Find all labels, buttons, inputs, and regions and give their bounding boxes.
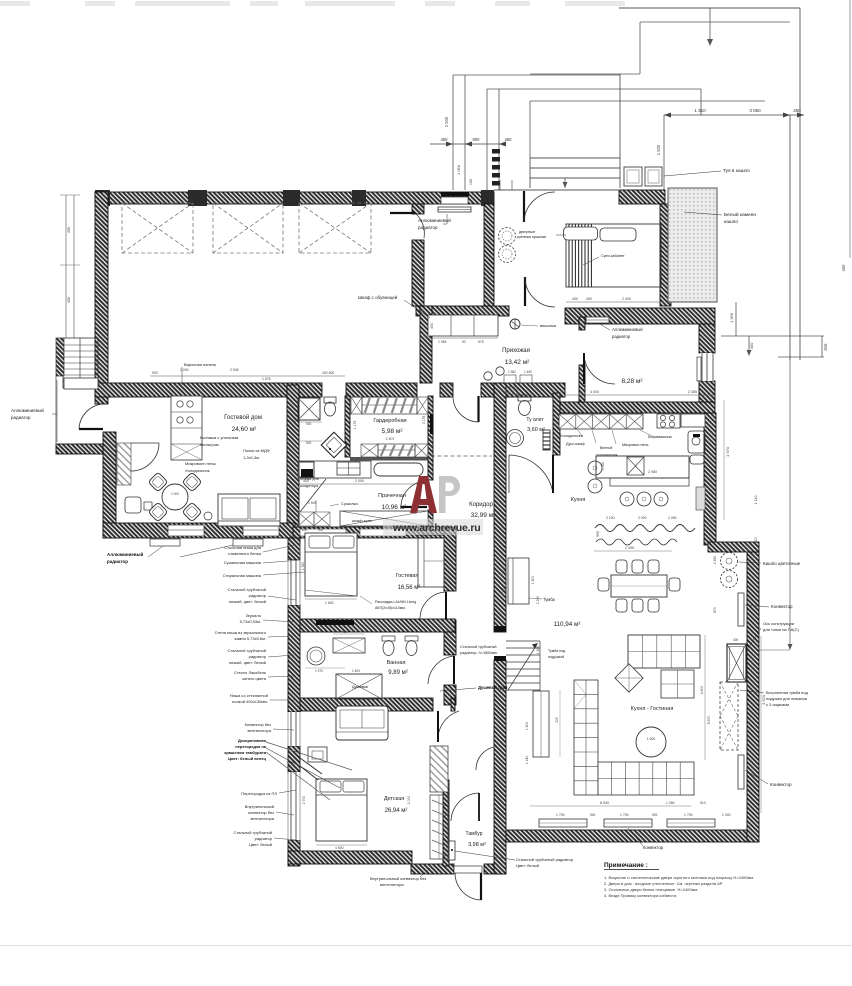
svg-text:100: 100 [469, 179, 473, 185]
svg-text:1 800: 1 800 [531, 576, 535, 585]
svg-text:Душевой трап: Душевой трап [478, 685, 508, 690]
svg-text:1 700: 1 700 [556, 813, 565, 817]
svg-text:2 850: 2 850 [713, 556, 717, 565]
svg-text:26,94 м²: 26,94 м² [385, 808, 408, 814]
svg-text:Цвет: белый венец: Цвет: белый венец [228, 756, 266, 761]
svg-text:400 600: 400 600 [322, 371, 334, 375]
svg-text:шкаф-купе: шкаф-купе [352, 518, 373, 523]
svg-text:900: 900 [306, 422, 312, 426]
svg-text:945: 945 [590, 813, 596, 817]
svg-text:Кашпо цветочные: Кашпо цветочные [763, 561, 801, 566]
svg-text:3 050: 3 050 [749, 108, 761, 113]
svg-text:Сушилка: Сушилка [341, 501, 359, 506]
svg-text:870: 870 [713, 607, 717, 613]
svg-text:Встроенная тумба под: Встроенная тумба под [766, 690, 808, 695]
svg-text:5,73х0,93м.: 5,73х0,93м. [240, 619, 261, 624]
svg-text:подушкой: подушкой [548, 655, 564, 659]
svg-text:2 980: 2 980 [648, 470, 657, 474]
svg-text:2 100: 2 100 [606, 516, 615, 520]
svg-text:450: 450 [749, 342, 754, 349]
svg-text:1 600: 1 600 [647, 737, 656, 741]
svg-text:подушки для лежания: подушки для лежания [766, 696, 807, 701]
svg-text:Венной: Венной [600, 446, 612, 450]
svg-text:Стальной трубчатый: Стальной трубчатый [228, 587, 266, 592]
svg-text:Аллюминиевый: Аллюминиевый [612, 327, 643, 332]
svg-text:Холодильник: Холодильник [560, 434, 584, 438]
svg-text:вентилятора: вентилятора [250, 816, 274, 821]
svg-text:полкой 400х130мм.: полкой 400х130мм. [232, 699, 268, 704]
svg-text:радиатор: радиатор [107, 559, 128, 564]
svg-text:вентилятора: вентилятора [380, 882, 404, 887]
svg-text:450: 450 [441, 137, 449, 142]
svg-text:www.archrevue.ru: www.archrevue.ru [392, 522, 480, 534]
svg-text:глаженного белья: глаженного белья [228, 551, 261, 556]
svg-text:радиатор: радиатор [418, 225, 438, 230]
svg-text:Раскладка LAUNN Living: Раскладка LAUNN Living [375, 600, 416, 604]
svg-text:4 620: 4 620 [761, 694, 766, 705]
svg-text:Ту алет: Ту алет [526, 417, 544, 423]
svg-text:1 310: 1 310 [694, 108, 706, 113]
svg-text:радиатор: радиатор [249, 593, 267, 598]
svg-text:2 000: 2 000 [407, 796, 411, 805]
svg-text:1 050: 1 050 [456, 164, 461, 175]
svg-text:1 700: 1 700 [684, 813, 693, 817]
svg-text:Прачечная: Прачечная [378, 493, 406, 499]
svg-text:для топки на ПА(С): для топки на ПА(С) [763, 627, 800, 632]
svg-text:Цвет: белый: Цвет: белый [249, 842, 272, 847]
svg-text:Кухня - Гостиная: Кухня - Гостиная [631, 706, 674, 712]
svg-text:Тумба: Тумба [543, 597, 556, 602]
svg-text:АКП(2х45)х110мм.: АКП(2х45)х110мм. [375, 606, 406, 610]
svg-text:750: 750 [502, 587, 506, 593]
svg-text:Стекло Лакобель: Стекло Лакобель [234, 670, 266, 675]
svg-text:945: 945 [652, 813, 658, 817]
svg-text:1 970: 1 970 [315, 669, 323, 673]
svg-text:Детская: Детская [384, 796, 404, 802]
svg-text:1 984: 1 984 [438, 340, 447, 344]
svg-text:вентилятора: вентилятора [247, 728, 271, 733]
svg-text:перегородка на: перегородка на [235, 744, 266, 749]
svg-text:600: 600 [318, 528, 324, 532]
svg-text:400: 400 [733, 638, 739, 642]
svg-text:400: 400 [342, 630, 348, 634]
svg-text:3,60 м²: 3,60 м² [527, 427, 545, 433]
svg-text:Холодильник: Холодильник [185, 468, 210, 473]
svg-text:845: 845 [823, 343, 828, 351]
svg-text:Конвектор: Конвектор [770, 782, 792, 787]
svg-text:8 940: 8 940 [600, 801, 609, 805]
svg-text:1 140: 1 140 [754, 496, 758, 505]
svg-text:1 678: 1 678 [262, 377, 271, 381]
svg-text:радиатор: радиатор [612, 334, 631, 339]
svg-text:513: 513 [293, 417, 297, 423]
svg-text:камня 5,73х0,6м.: камня 5,73х0,6м. [234, 636, 266, 641]
svg-text:2. Двери в дом - входные утепл: 2. Двери в дом - входные утепленные. См.… [604, 881, 723, 886]
svg-text:Ниша со стеклянной: Ниша со стеклянной [230, 693, 268, 698]
svg-text:Внутрипольный: Внутрипольный [245, 804, 274, 809]
svg-text:1,2х0,3м.: 1,2х0,3м. [243, 455, 260, 460]
svg-text:Стальной трубчатый радиатор: Стальной трубчатый радиатор [516, 857, 574, 862]
svg-text:24,60 м²: 24,60 м² [232, 426, 258, 433]
svg-text:1 490: 1 490 [524, 370, 532, 374]
svg-text:Ось конструкции: Ось конструкции [763, 621, 794, 626]
svg-text:920: 920 [555, 717, 559, 723]
svg-text:5,98 м²: 5,98 м² [381, 428, 403, 435]
svg-text:радиатор: радиатор [11, 415, 31, 420]
svg-text:2 385: 2 385 [688, 390, 697, 394]
svg-text:8 670: 8 670 [707, 716, 711, 725]
svg-text:Конвектор: Конвектор [643, 845, 664, 850]
svg-text:низкий, цвет: белый: низкий, цвет: белый [229, 660, 266, 665]
svg-text:Полки из МДФ: Полки из МДФ [243, 448, 270, 453]
svg-text:9,89 м²: 9,89 м² [388, 670, 407, 676]
svg-text:Стена ниша из зеркального: Стена ниша из зеркального [215, 630, 267, 635]
svg-text:Примечание :: Примечание : [604, 862, 648, 869]
svg-text:450: 450 [841, 264, 846, 272]
svg-text:2 407: 2 407 [386, 437, 395, 441]
svg-text:2 050: 2 050 [668, 516, 677, 520]
svg-text:110,94 м²: 110,94 м² [554, 621, 581, 628]
svg-text:1 400: 1 400 [536, 646, 540, 655]
svg-text:50: 50 [462, 340, 466, 344]
svg-text:910: 910 [700, 801, 706, 805]
svg-text:Стальной трубчатый: Стальной трубчатый [228, 648, 266, 653]
svg-text:Сушильная машина: Сушильная машина [224, 560, 262, 565]
svg-text:Тумба под: Тумба под [548, 649, 566, 653]
svg-text:Внутрипольный конвектор без: Внутрипольный конвектор без [370, 876, 426, 881]
svg-text:2 000: 2 000 [444, 116, 449, 127]
svg-text:1 240: 1 240 [525, 756, 529, 765]
svg-text:800: 800 [473, 137, 481, 142]
svg-text:Гостевой дом: Гостевой дом [224, 414, 262, 421]
svg-text:450: 450 [505, 137, 513, 142]
svg-text:Душ.шкаф: Душ.шкаф [566, 442, 585, 446]
svg-text:радиатор, h=1800мм.: радиатор, h=1800мм. [460, 651, 498, 655]
svg-text:конвектор без: конвектор без [248, 810, 274, 815]
svg-text:Микроволн печь/: Микроволн печь/ [185, 461, 217, 466]
svg-text:крашеном тамбурата: крашеном тамбурата [224, 750, 266, 755]
svg-text:Коридор: Коридор [469, 502, 493, 508]
svg-text:крепежи сушилки: крепежи сушилки [517, 235, 546, 239]
svg-text:Гардеробная: Гардеробная [373, 418, 406, 424]
svg-text:13,42 м²: 13,42 м² [505, 359, 531, 366]
svg-text:4 600: 4 600 [700, 686, 704, 695]
svg-text:Варочная панель: Варочная панель [184, 362, 216, 367]
svg-text:3. Остальные двери белые глянц: 3. Остальные двери белые глянцевые. Н=24… [604, 887, 698, 892]
svg-text:900: 900 [502, 567, 506, 573]
svg-text:Конвектор: Конвектор [771, 604, 793, 609]
svg-text:Цвет: белый: Цвет: белый [516, 863, 539, 868]
svg-text:8,28 м²: 8,28 м² [621, 378, 643, 385]
svg-text:Кофемашина: Кофемашина [648, 435, 673, 439]
svg-text:1 280: 1 280 [666, 801, 675, 805]
svg-text:с 3 ящиками: с 3 ящиками [766, 702, 789, 707]
svg-text:1. Вскрытие и сантехнические д: 1. Вскрытие и сантехнические двери скрыт… [604, 875, 754, 880]
svg-text:2 400: 2 400 [622, 297, 631, 301]
svg-text:Белый каменн: Белый каменн [724, 211, 756, 218]
svg-text:1 356: 1 356 [729, 312, 734, 323]
svg-text:220: 220 [754, 537, 758, 543]
svg-text:Вытяжка с угольным: Вытяжка с угольным [200, 435, 239, 440]
svg-text:Стальной трубчатый: Стальной трубчатый [460, 645, 497, 649]
svg-text:1 920: 1 920 [656, 144, 661, 155]
svg-text:Аллюминиевый: Аллюминиевый [11, 407, 44, 413]
svg-text:синего цвета: синего цвета [242, 676, 267, 681]
svg-text:1 320: 1 320 [301, 562, 305, 571]
svg-text:4 600: 4 600 [335, 846, 344, 850]
svg-text:2 700: 2 700 [302, 796, 306, 805]
svg-text:955: 955 [596, 531, 600, 537]
svg-text:Туя в кашпо: Туя в кашпо [723, 168, 750, 174]
svg-text:450: 450 [430, 323, 434, 329]
svg-text:дверные: дверные [519, 229, 536, 234]
svg-text:Душевая: Душевая [352, 685, 368, 689]
svg-text:низкий, цвет: белый: низкий, цвет: белый [229, 599, 266, 604]
svg-text:радиатор: радиатор [249, 654, 267, 659]
svg-text:400: 400 [572, 297, 578, 301]
svg-text:кондитера: кондитера [300, 484, 319, 488]
svg-text:2 000: 2 000 [355, 479, 364, 483]
svg-text:1 400: 1 400 [525, 722, 529, 731]
svg-text:450: 450 [67, 297, 71, 303]
svg-text:вешалка: вешалка [540, 323, 557, 328]
svg-text:Стольная ниша для: Стольная ниша для [224, 545, 261, 550]
svg-text:Стальной трубчатый: Стальной трубчатый [234, 830, 272, 835]
svg-text:1 400: 1 400 [352, 669, 360, 673]
svg-text:600: 600 [302, 528, 308, 532]
svg-text:1 040: 1 040 [722, 813, 731, 817]
svg-text:Мойка для: Мойка для [300, 477, 319, 481]
svg-text:1 173: 1 173 [353, 421, 357, 430]
svg-text:2 200: 2 200 [536, 596, 540, 605]
svg-text:Зеркало: Зеркало [245, 613, 261, 618]
svg-text:1 700: 1 700 [620, 813, 629, 817]
svg-text:2 945: 2 945 [230, 368, 239, 372]
svg-text:1 970: 1 970 [725, 446, 730, 457]
svg-text:Кухня: Кухня [571, 497, 586, 503]
svg-text:1 982: 1 982 [508, 370, 516, 374]
svg-text:4 000: 4 000 [590, 390, 599, 394]
svg-text:675: 675 [478, 340, 484, 344]
svg-text:Срез кабинет: Срез кабинет [601, 254, 625, 258]
svg-text:Перегородка из ПЛ: Перегородка из ПЛ [241, 791, 277, 796]
svg-text:450: 450 [793, 108, 801, 113]
svg-text:Микровол.печь: Микровол.печь [622, 443, 648, 447]
svg-text:900: 900 [152, 371, 158, 375]
svg-text:Конвектор без: Конвектор без [245, 722, 272, 727]
svg-text:фильтром: фильтром [200, 442, 219, 447]
svg-text:Шкаф с обувницей: Шкаф с обувницей [358, 294, 398, 300]
svg-text:3 179: 3 179 [422, 416, 426, 425]
svg-text:Тамбур: Тамбур [466, 831, 483, 837]
svg-text:16,56 м²: 16,56 м² [398, 585, 421, 591]
svg-text:450: 450 [586, 297, 592, 301]
svg-text:32,99 м²: 32,99 м² [471, 512, 497, 519]
svg-text:Прихожая: Прихожая [502, 348, 530, 354]
svg-text:Аллюминиевый: Аллюминиевый [418, 217, 451, 223]
svg-text:радиатор: радиатор [255, 836, 273, 841]
svg-text:1 600: 1 600 [325, 601, 334, 605]
svg-text:кашпо: кашпо [724, 220, 738, 225]
svg-text:2 495: 2 495 [625, 546, 634, 550]
svg-text:Стиральная машина: Стиральная машина [223, 573, 262, 578]
svg-text:450: 450 [67, 227, 71, 233]
svg-text:Ванная: Ванная [387, 660, 406, 666]
svg-text:1 500: 1 500 [308, 501, 317, 505]
svg-text:Аллюминиевый: Аллюминиевый [107, 551, 143, 557]
svg-text:Декоративная: Декоративная [238, 738, 267, 743]
svg-text:1 000: 1 000 [171, 492, 179, 496]
svg-text:900: 900 [306, 441, 312, 445]
svg-text:4. Везде Провику конвектора со: 4. Везде Провику конвектора собвести. [604, 893, 677, 898]
svg-text:Гостевая: Гостевая [396, 573, 419, 579]
svg-text:3,98 м²: 3,98 м² [468, 842, 486, 848]
svg-text:2 000: 2 000 [638, 516, 647, 520]
svg-text:1 240: 1 240 [180, 368, 189, 372]
